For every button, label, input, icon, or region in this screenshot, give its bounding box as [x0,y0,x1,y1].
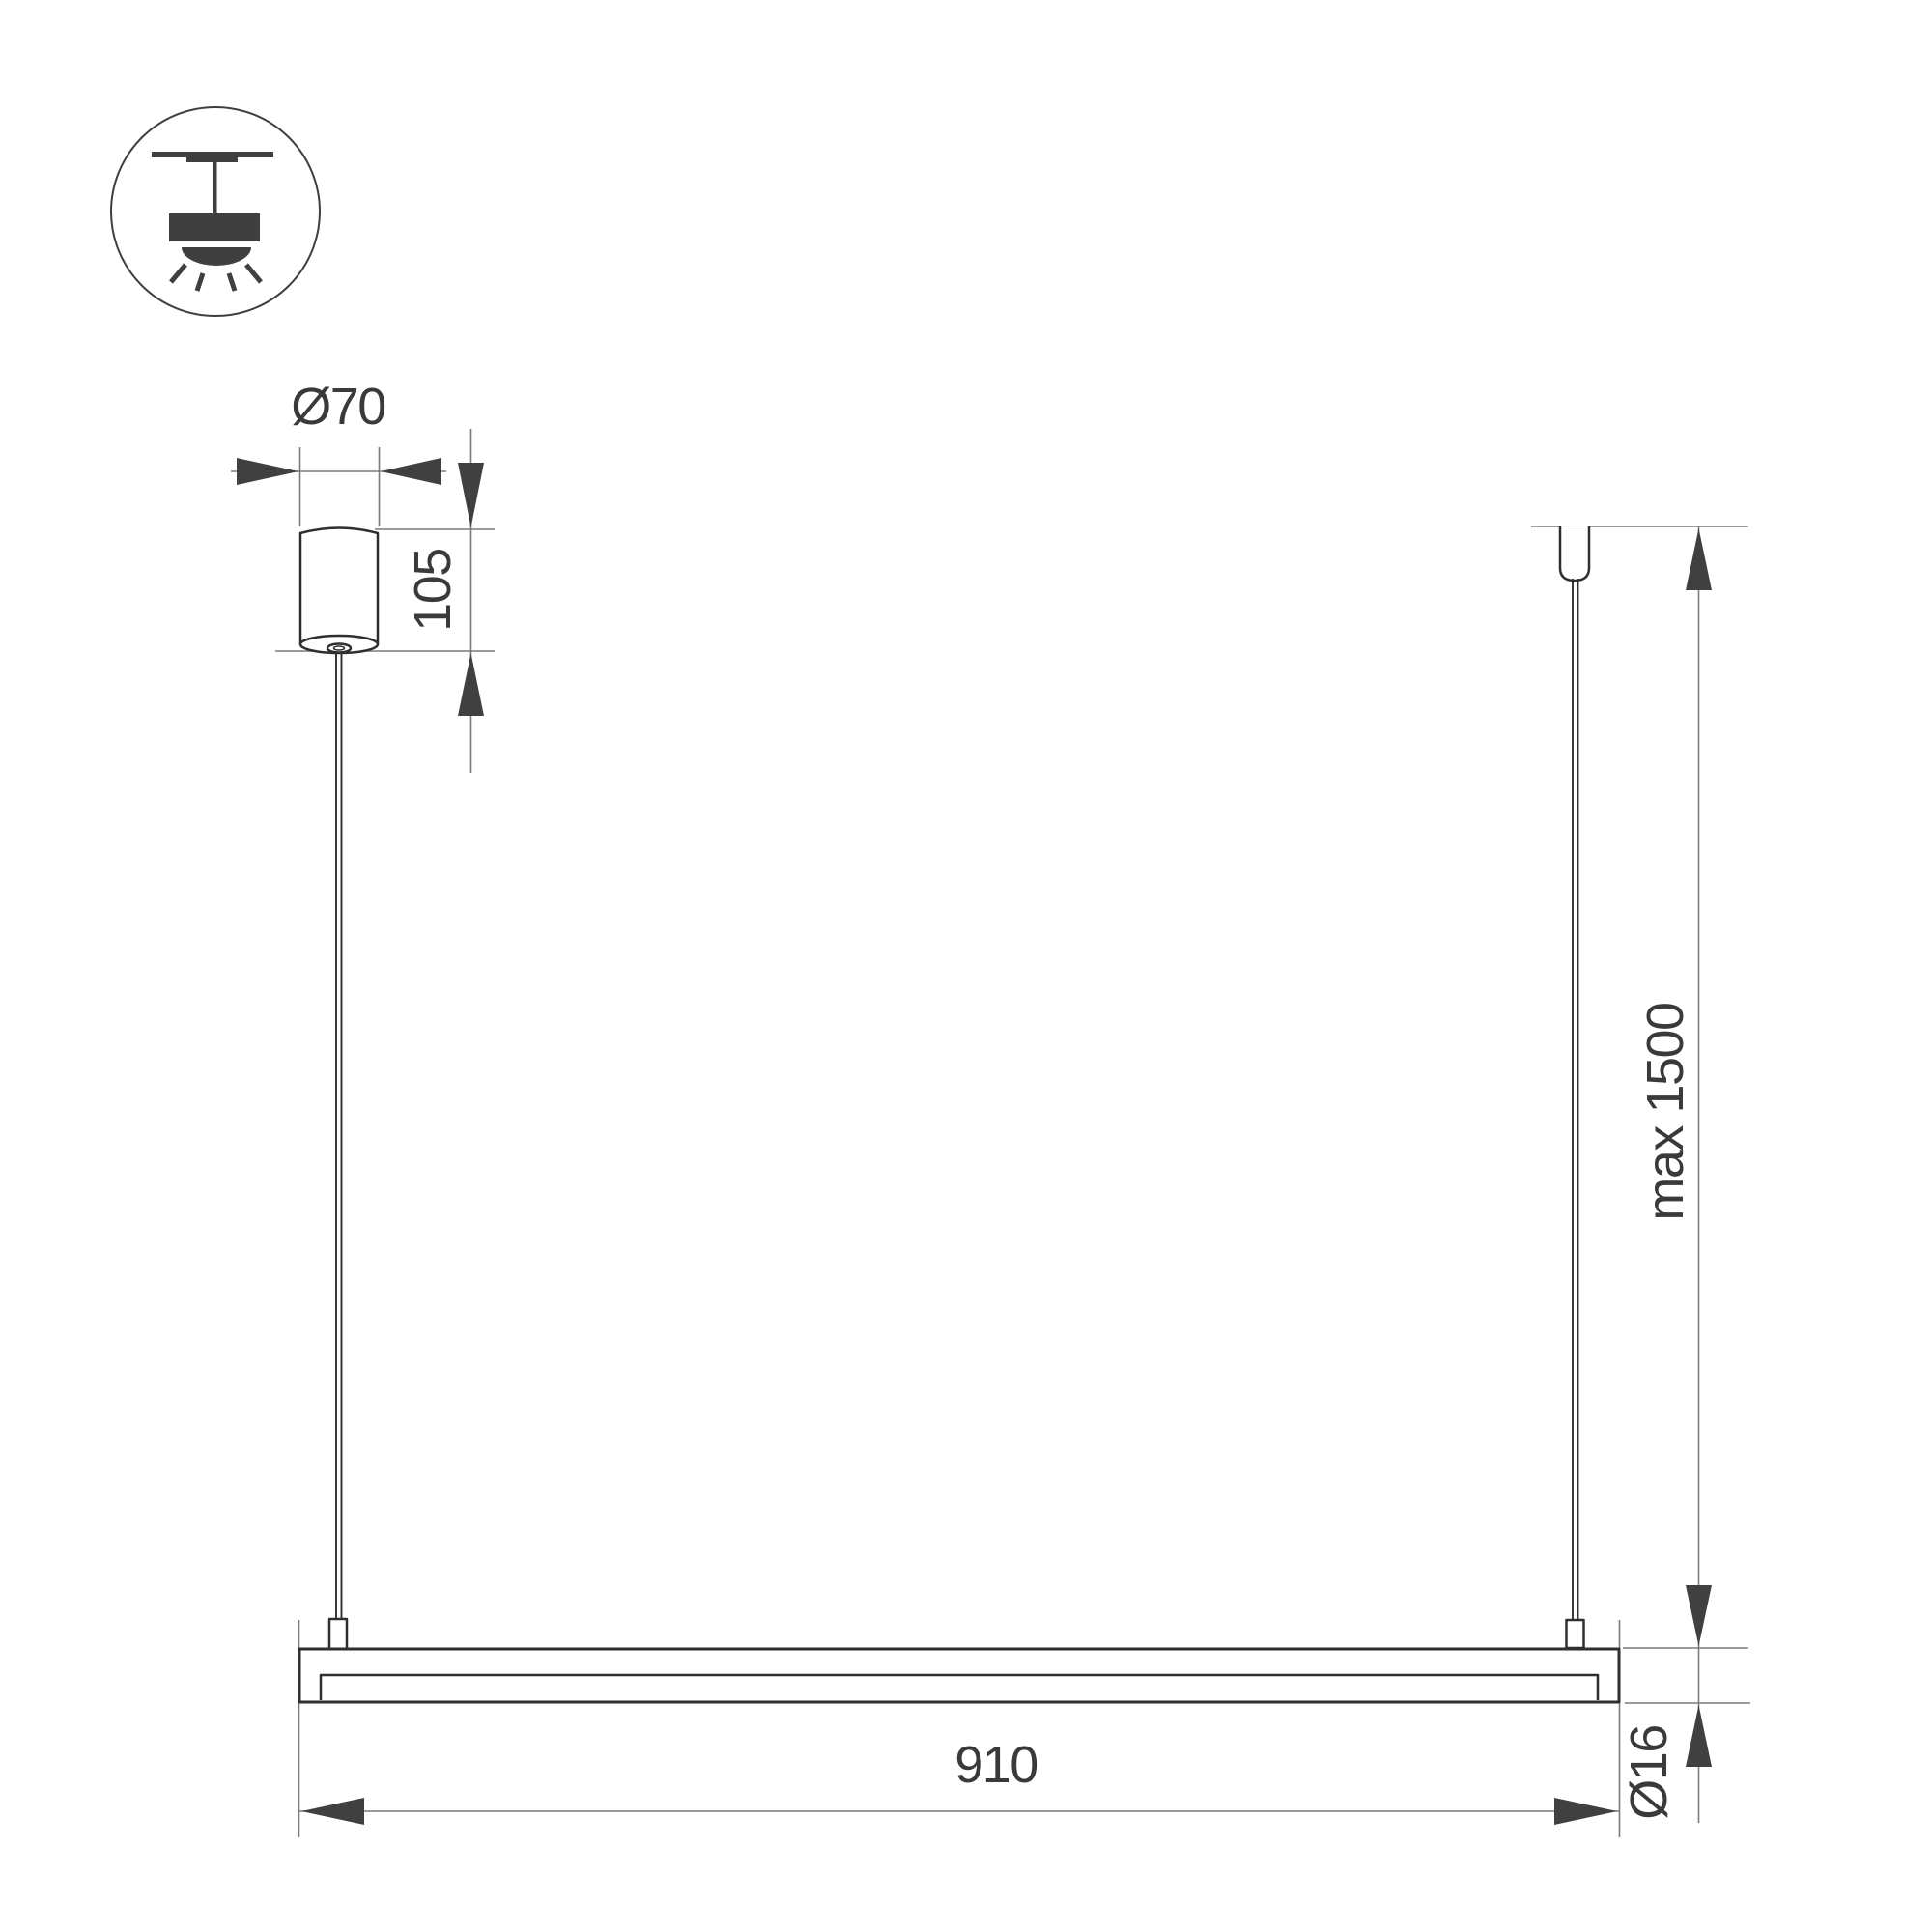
icon-lamp-body [169,213,260,241]
technical-drawing-canvas: Ø70 105 max 1500 Ø16 910 [0,0,1932,1932]
dimension-tube-diameter: Ø16 [1620,1703,1750,1820]
cable-gland [327,644,351,653]
light-ray [171,265,185,282]
wire-gripper-right [1567,1620,1584,1648]
suspension-length-label: max 1500 [1636,1003,1694,1220]
dimension-suspension-length: max 1500 [1531,526,1748,1823]
arrowhead-down-icon [458,463,484,527]
suspension-wire-left [329,652,347,1649]
bar-length-label: 910 [954,1736,1037,1794]
arrowhead-down-icon [1686,1585,1712,1646]
dimension-canopy-diameter: Ø70 [231,378,446,526]
suspension-wire-right [1560,526,1589,1648]
wire-gripper-left [329,1619,347,1649]
icon-stem [213,160,217,214]
canopy-height-label: 105 [404,549,462,632]
light-ray [197,273,203,291]
canopy-body [300,528,378,644]
icon-light-rays [171,265,261,291]
arrowhead-right-icon [237,458,298,485]
ceiling-mount-pendant-icon [111,107,320,316]
light-bar [299,1649,1619,1702]
light-ray [246,265,261,282]
ceiling-cup-right [1560,526,1589,581]
canopy-diameter-label: Ø70 [291,378,385,436]
icon-lamp-dome [182,247,251,266]
arrowhead-up-icon [1686,528,1712,590]
arrowhead-left-icon [381,458,441,485]
tube-diameter-label: Ø16 [1620,1725,1678,1820]
arrowhead-up-icon [458,653,484,716]
icon-mount-plate [186,157,238,162]
arrowhead-right-icon [1554,1798,1617,1825]
light-ray [229,273,235,291]
canopy [300,528,378,654]
arrowhead-left-icon [301,1798,364,1825]
pendant-luminaire-dimension-drawing: Ø70 105 max 1500 Ø16 910 [0,0,1932,1932]
icon-ceiling-line [152,152,273,157]
arrowhead-up-icon [1686,1705,1712,1767]
